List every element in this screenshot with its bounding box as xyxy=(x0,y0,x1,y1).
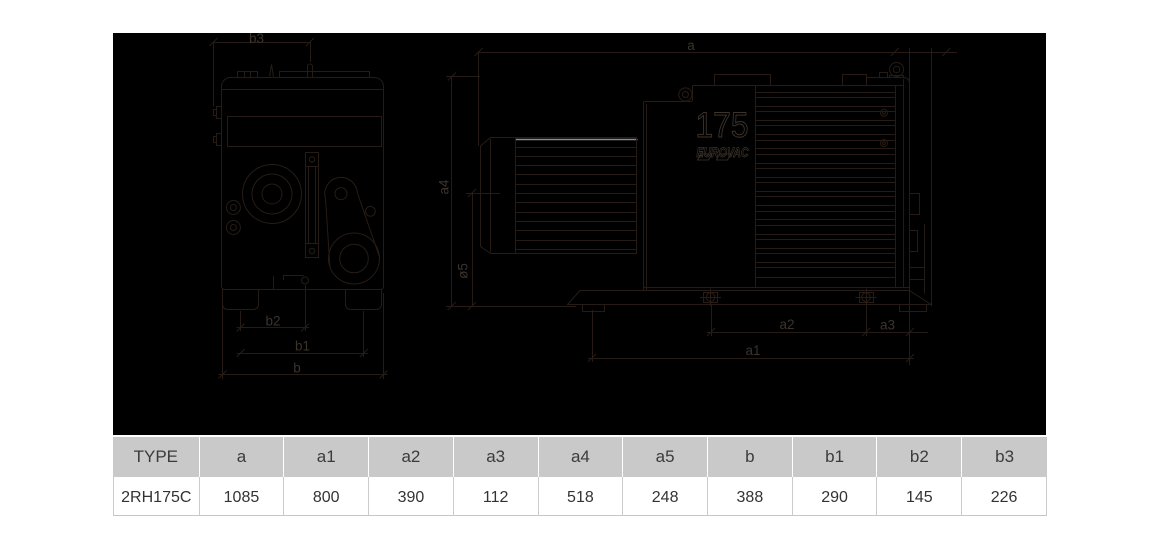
svg-text:a4: a4 xyxy=(437,179,452,195)
svg-text:175: 175 xyxy=(696,105,749,145)
svg-text:a2: a2 xyxy=(779,317,794,332)
svg-text:b2: b2 xyxy=(265,314,280,329)
svg-text:b: b xyxy=(293,361,301,376)
svg-text:a: a xyxy=(687,38,695,53)
svg-text:a3: a3 xyxy=(880,318,895,333)
svg-text:a1: a1 xyxy=(745,343,760,358)
svg-text:ø5: ø5 xyxy=(456,263,471,279)
svg-text:EUROVAC: EUROVAC xyxy=(697,144,750,160)
svg-text:b1: b1 xyxy=(295,339,310,354)
svg-text:b3: b3 xyxy=(249,31,264,46)
